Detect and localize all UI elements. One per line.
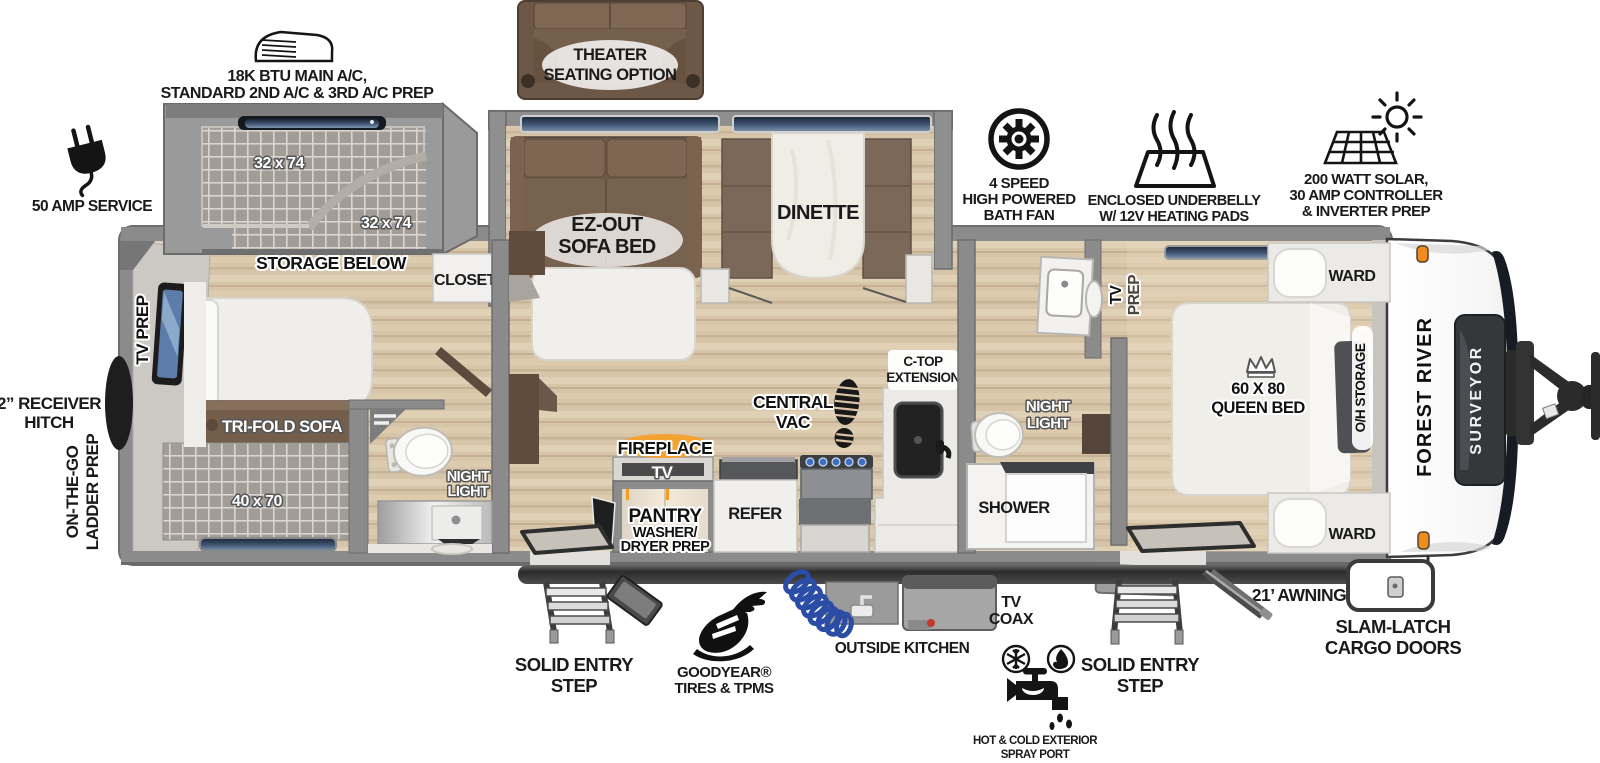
svg-text:21’ AWNING: 21’ AWNING [1252, 585, 1347, 605]
svg-text:THEATER: THEATER [573, 46, 647, 64]
svg-text:CLOSET: CLOSET [434, 272, 497, 289]
svg-text:18K BTU MAIN A/C,: 18K BTU MAIN A/C, [227, 68, 366, 85]
svg-text:TRI-FOLD SOFA: TRI-FOLD SOFA [222, 418, 343, 436]
svg-text:ON-THE-GO: ON-THE-GO [63, 445, 82, 538]
svg-text:NIGHT: NIGHT [1026, 398, 1071, 415]
svg-text:SOFA BED: SOFA BED [558, 236, 656, 258]
svg-text:O/H STORAGE: O/H STORAGE [1353, 343, 1368, 432]
svg-text:FIREPLACE: FIREPLACE [618, 438, 713, 458]
svg-text:STORAGE BELOW: STORAGE BELOW [256, 253, 407, 273]
svg-text:C-TOP: C-TOP [903, 354, 943, 369]
svg-text:NIGHT: NIGHT [447, 469, 490, 485]
svg-text:EZ-OUT: EZ-OUT [571, 214, 643, 236]
svg-text:& INVERTER PREP: & INVERTER PREP [1302, 203, 1431, 220]
svg-text:SOLID ENTRY: SOLID ENTRY [515, 654, 634, 675]
svg-text:40 x 70: 40 x 70 [232, 493, 282, 510]
svg-text:HITCH: HITCH [24, 413, 74, 432]
svg-text:SURVEYOR: SURVEYOR [1468, 345, 1485, 455]
svg-text:REFER: REFER [728, 505, 782, 523]
svg-text:CENTRAL: CENTRAL [753, 392, 834, 412]
svg-text:200 WATT SOLAR,: 200 WATT SOLAR, [1304, 171, 1428, 188]
svg-text:COAX: COAX [989, 611, 1034, 628]
svg-text:32 x 74: 32 x 74 [361, 215, 411, 232]
svg-text:50 AMP SERVICE: 50 AMP SERVICE [32, 198, 152, 215]
svg-text:WARD: WARD [1329, 526, 1376, 543]
svg-text:TV PREP: TV PREP [133, 295, 152, 364]
svg-text:LIGHT: LIGHT [448, 484, 490, 500]
svg-text:W/ 12V HEATING PADS: W/ 12V HEATING PADS [1099, 209, 1249, 225]
svg-text:HOT & COLD EXTERIOR: HOT & COLD EXTERIOR [973, 735, 1098, 747]
svg-text:DINETTE: DINETTE [777, 202, 859, 224]
svg-text:OUTSIDE KITCHEN: OUTSIDE KITCHEN [835, 640, 970, 657]
svg-text:32 x 74: 32 x 74 [254, 155, 304, 172]
svg-text:TIRES & TPMS: TIRES & TPMS [674, 680, 774, 697]
svg-text:TV: TV [1108, 284, 1125, 304]
svg-text:BATH FAN: BATH FAN [984, 207, 1055, 224]
svg-text:LADDER PREP: LADDER PREP [83, 434, 102, 551]
svg-text:SEATING OPTION: SEATING OPTION [544, 66, 677, 84]
svg-text:PANTRY: PANTRY [629, 506, 703, 527]
svg-text:GOODYEAR®: GOODYEAR® [677, 664, 772, 681]
svg-text:FOREST RIVER: FOREST RIVER [1414, 317, 1436, 477]
svg-text:DRYER PREP: DRYER PREP [621, 539, 711, 555]
svg-text:TV: TV [1001, 594, 1021, 611]
svg-text:STEP: STEP [1117, 675, 1163, 696]
svg-text:SHOWER: SHOWER [978, 499, 1050, 517]
svg-text:VAC: VAC [776, 412, 811, 432]
svg-text:TV: TV [652, 463, 674, 482]
svg-text:2” RECEIVER: 2” RECEIVER [0, 394, 101, 413]
svg-text:HIGH POWERED: HIGH POWERED [962, 191, 1076, 208]
svg-text:30 AMP CONTROLLER: 30 AMP CONTROLLER [1289, 187, 1443, 204]
svg-text:QUEEN BED: QUEEN BED [1211, 399, 1305, 417]
svg-text:SPRAY PORT: SPRAY PORT [1001, 749, 1070, 761]
svg-text:STEP: STEP [551, 675, 597, 696]
svg-text:4 SPEED: 4 SPEED [989, 175, 1050, 192]
svg-text:EXTENSION: EXTENSION [886, 370, 960, 385]
svg-text:SLAM-LATCH: SLAM-LATCH [1336, 616, 1451, 637]
svg-text:WARD: WARD [1329, 268, 1376, 285]
svg-text:SOLID ENTRY: SOLID ENTRY [1081, 654, 1200, 675]
svg-text:60 X 80: 60 X 80 [1231, 380, 1285, 398]
svg-text:ENCLOSED UNDERBELLY: ENCLOSED UNDERBELLY [1088, 193, 1262, 209]
svg-text:STANDARD 2ND A/C & 3RD A/C PRE: STANDARD 2ND A/C & 3RD A/C PREP [161, 85, 435, 102]
svg-text:LIGHT: LIGHT [1027, 415, 1070, 432]
svg-text:CARGO DOORS: CARGO DOORS [1325, 637, 1462, 658]
